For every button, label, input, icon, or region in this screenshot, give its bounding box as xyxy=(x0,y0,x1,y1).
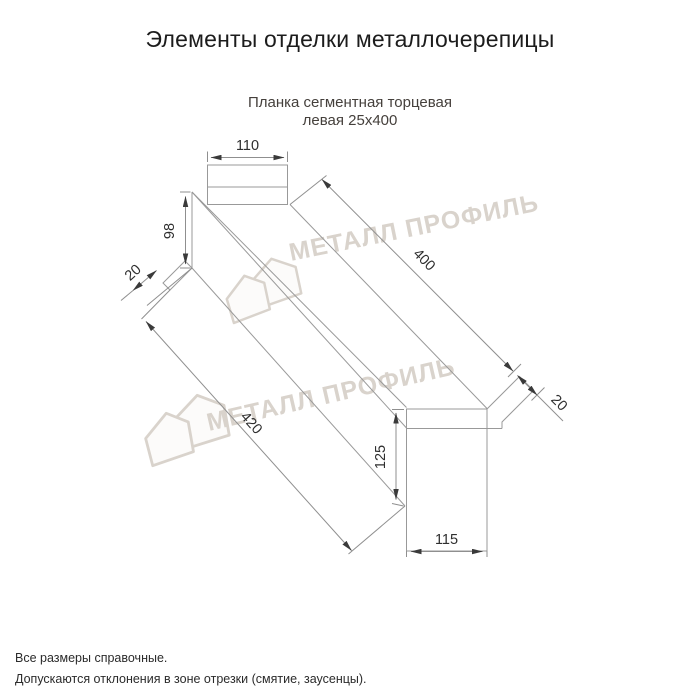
dimension-98-label: 98 xyxy=(162,223,178,239)
right-end-profile xyxy=(407,377,534,552)
dimension-20-left: 20 xyxy=(121,262,192,319)
footer-note-1: Все размеры справочные. xyxy=(15,648,367,669)
catalog-page: Элементы отделки металлочерепицы Планка … xyxy=(0,0,700,700)
dimension-115-label: 115 xyxy=(435,532,458,548)
dimension-20-right: 20 xyxy=(508,364,570,421)
dimension-125-label: 125 xyxy=(373,445,389,469)
dimension-110-label: 110 xyxy=(236,138,259,154)
dimension-110: 110 xyxy=(208,138,288,162)
dimension-98: 98 xyxy=(162,192,191,268)
footer-notes: Все размеры справочные. Допускаются откл… xyxy=(15,648,367,690)
dimension-115: 115 xyxy=(407,532,488,557)
right-end-rect xyxy=(407,409,488,551)
dimension-20-right-label: 20 xyxy=(547,392,570,415)
footer-note-2: Допускаются отклонения в зоне отрезки (с… xyxy=(15,669,367,690)
watermark-upper: МЕТАЛЛ ПРОФИЛЬ xyxy=(221,189,542,324)
dimension-400-label: 400 xyxy=(410,246,438,274)
left-top-flange-rect xyxy=(208,165,288,205)
dimension-20-left-label: 20 xyxy=(122,262,145,285)
left-hem-edge xyxy=(163,261,192,290)
technical-drawing: МЕТАЛЛ ПРОФИЛЬ МЕТАЛЛ ПРОФИЛЬ xyxy=(0,0,700,700)
dimension-125: 125 xyxy=(373,410,404,507)
